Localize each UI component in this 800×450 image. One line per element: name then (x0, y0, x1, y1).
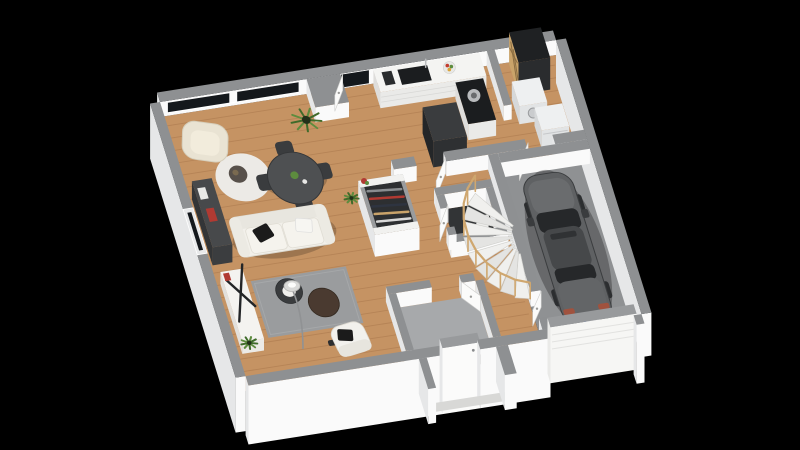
scene-canvas (0, 0, 800, 450)
floorplan-3d-render (0, 0, 800, 450)
